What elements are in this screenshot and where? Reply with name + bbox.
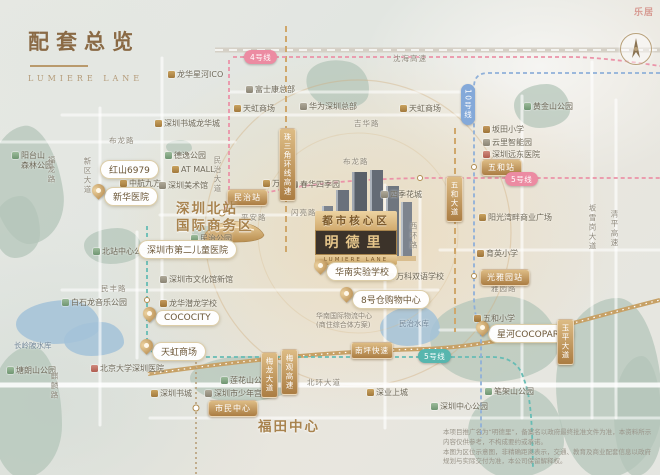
poi-label-text: AT MALL <box>181 165 215 175</box>
poi-label-text: 深圳美术馆 <box>168 181 208 191</box>
poi-label-text: 万科双语学校 <box>396 272 444 282</box>
road-label: 民丰路 <box>101 283 127 294</box>
road-badge: 珠三角环线高速 <box>279 128 296 201</box>
road-label: 闪亮路 <box>291 207 317 218</box>
poi-label: 深圳市文化馆新馆 <box>160 275 233 285</box>
poi-label-text: 云里智能园 <box>492 138 532 148</box>
project-marker: 都市核心区 明德里 LUMIERE LANE <box>315 211 397 265</box>
poi-label: 育英小学 <box>477 249 518 259</box>
poi-label: 深圳市少年宫 <box>205 389 262 399</box>
school-icon <box>483 126 490 133</box>
poi-label: 深圳中心公园 <box>431 402 488 412</box>
mall-icon <box>151 390 158 397</box>
poi-label: 深圳书城 <box>151 389 192 399</box>
park-icon <box>431 403 438 410</box>
poi-label: 白石龙音乐公园 <box>62 298 127 308</box>
metro-line-badge: 10号线 <box>461 84 475 125</box>
station-badge: 光雅园站 <box>480 269 530 286</box>
poi-pill-text: 华南实验学校 <box>335 268 389 278</box>
road-label: 清平高速 <box>609 210 620 248</box>
label-text: 民治水库 <box>399 319 429 328</box>
road-badge: 梅龙大道 <box>261 352 278 398</box>
road-badge: 梅观高速 <box>281 349 298 395</box>
poi-label-text: 深圳市少年宫 <box>214 389 262 399</box>
park-icon <box>165 152 172 159</box>
park-icon <box>62 299 69 306</box>
poi-label-text: 德逸公园 <box>174 151 206 161</box>
poi-label-text: 深圳书城 <box>160 389 192 399</box>
poi-label-text: 坂田小学 <box>492 125 524 135</box>
poi-label: AT MALL <box>172 165 215 175</box>
road-label: 西环路 <box>408 222 419 251</box>
school-icon <box>477 250 484 257</box>
district-label: 深圳北站 国际商务区 <box>176 201 254 235</box>
road-label: 福龙路 <box>46 156 57 185</box>
poi-pill-text: 星河COCOPARK <box>497 330 565 340</box>
mall-icon <box>155 120 162 127</box>
poi-pill: 天虹商场 <box>152 342 206 361</box>
disclaimer-line: 本项目推广名为“明德里”，备案名以政府最终批准文件为准，本资料所示内容仅供参考，… <box>443 428 655 448</box>
poi-label-text: 华为深圳总部 <box>309 102 357 112</box>
poi-label: 黄金山公园 <box>524 102 573 112</box>
poi-label: 四季花城 <box>381 190 422 200</box>
landmark-icon <box>159 182 166 189</box>
park-icon <box>485 388 492 395</box>
mall-icon <box>168 71 175 78</box>
poi-label: 阳光湾畔商业广场 <box>479 213 552 223</box>
poi-label: 华为深圳总部 <box>300 102 357 112</box>
label-text: 华南国际物流中心 (商住综合体方案) <box>316 312 372 330</box>
page-subtitle: LUMIERE LANE <box>28 74 143 83</box>
poi-label: 深业上城 <box>367 388 408 398</box>
poi-label: 云里智能园 <box>483 138 532 148</box>
landmark-icon <box>205 390 212 397</box>
poi-label-text: 白石龙音乐公园 <box>71 298 127 308</box>
poi-pill-text: 新华医院 <box>113 193 149 203</box>
road-label: 布龙路 <box>343 156 369 167</box>
compass-icon <box>620 33 652 65</box>
title-divider <box>30 65 88 67</box>
road-label: 布龙路 <box>109 135 135 146</box>
poi-label-text: 笔架山公园 <box>494 387 534 397</box>
poi-label-text: 北京大学深圳医院 <box>100 364 164 374</box>
poi-label: 龙华潜龙学校 <box>160 299 217 309</box>
mall-icon <box>120 180 127 187</box>
poi-label: 深圳美术馆 <box>159 181 208 191</box>
road-badge: 玉平大道 <box>557 319 574 365</box>
water-label: 长岭陂水库 <box>14 341 52 350</box>
road-label: 沈海高速 <box>393 53 427 64</box>
water-label: 民治水库 <box>399 319 429 328</box>
metro-line-badge: 5号线 <box>505 172 538 186</box>
mall-icon <box>172 166 179 173</box>
poi-pill: 8号仓购物中心 <box>352 290 430 309</box>
page-title: 配套总览 <box>28 26 143 56</box>
poi-pill-text: COCOCITY <box>164 313 211 323</box>
poi-label: 深圳书城龙华城 <box>155 119 220 129</box>
mall-icon <box>479 214 486 221</box>
park-icon <box>524 103 531 110</box>
poi-label-text: 深圳中心公园 <box>440 402 488 412</box>
poi-label-text: 天虹商场 <box>409 104 441 114</box>
poi-pill-text: 红山6979 <box>109 166 150 176</box>
poi-label-text: 天虹商场 <box>243 104 275 114</box>
poi-pill: 华南实验学校 <box>326 262 398 281</box>
poi-label: 龙华星河ICO <box>168 70 223 80</box>
poi-label-text: 黄金山公园 <box>533 102 573 112</box>
poi-label: 德逸公园 <box>165 151 206 161</box>
poi-pill: 红山6979 <box>100 160 159 179</box>
page-title-block: 配套总览 LUMIERE LANE <box>28 26 143 83</box>
poi-label: 天虹商场 <box>234 104 275 114</box>
poi-pill: 深圳市第二儿童医院 <box>138 240 237 259</box>
hospital-icon <box>483 151 490 158</box>
landmark-icon <box>300 103 307 110</box>
poi-label-text: 深圳书城龙华城 <box>164 119 220 129</box>
poi-label-text: 深业上城 <box>376 388 408 398</box>
landmark-icon <box>160 276 167 283</box>
label-text: 长岭陂水库 <box>14 341 52 350</box>
mall-icon <box>367 389 374 396</box>
landmark-icon <box>483 139 490 146</box>
poi-pill-text: 天虹商场 <box>161 348 197 358</box>
poi-label-text: 五和小学 <box>483 314 515 324</box>
school-icon <box>160 300 167 307</box>
project-area-banner: 都市核心区 <box>315 211 397 230</box>
road-badge: 五和大道 <box>446 176 463 222</box>
poi-label: 富士康总部 <box>246 85 295 95</box>
poi-pill-text: 深圳市第二儿童医院 <box>147 246 228 256</box>
poi-label-text: 富士康总部 <box>255 85 295 95</box>
mall-icon <box>400 105 407 112</box>
park-icon <box>221 377 228 384</box>
road-label: 吉华路 <box>354 118 380 129</box>
station-badge: 市民中心 <box>208 400 258 417</box>
disclaimer: 本项目推广名为“明德里”，备案名以政府最终批准文件为准，本资料所示内容仅供参考，… <box>443 428 655 467</box>
watermark: 乐居 <box>634 5 654 18</box>
road-label: 民治大道 <box>212 156 223 194</box>
metro-line-badge: 5号线 <box>418 349 451 363</box>
landmark-icon <box>246 86 253 93</box>
metro-line-badge: 4号线 <box>244 50 277 64</box>
poi-label-text: 龙华星河ICO <box>177 70 223 80</box>
project-name: 明德里 <box>315 230 397 255</box>
poi-label: 北京大学深圳医院 <box>91 364 164 374</box>
map-canvas: 配套总览 LUMIERE LANE 乐居 都市核心区 明德里 LUMIERE L… <box>0 0 660 475</box>
poi-pill-text: 8号仓购物中心 <box>361 296 421 306</box>
poi-label-text: 龙华潜龙学校 <box>169 299 217 309</box>
poi-label-text: 四季花城 <box>390 190 422 200</box>
road-label: 北环大道 <box>307 377 341 388</box>
poi-label: 天虹商场 <box>400 104 441 114</box>
park-icon <box>7 367 14 374</box>
poi-label: 笔架山公园 <box>485 387 534 397</box>
poi-label: 坂田小学 <box>483 125 524 135</box>
poi-label-text: 育英小学 <box>486 249 518 259</box>
road-label: 麒麟路 <box>49 372 60 401</box>
park-icon <box>12 152 19 159</box>
poi-label-text: 深圳市文化馆新馆 <box>169 275 233 285</box>
road-badge: 南坪快速 <box>351 342 393 359</box>
note-label: 华南国际物流中心 (商住综合体方案) <box>316 312 372 330</box>
poi-pill: 新华医院 <box>104 187 158 206</box>
poi-label-text: 阳光湾畔商业广场 <box>488 213 552 223</box>
mall-icon <box>263 180 270 187</box>
hospital-icon <box>91 365 98 372</box>
poi-label-text: 春华四季园 <box>300 180 340 190</box>
road-label: 坂雪岗大道 <box>587 204 598 252</box>
landmark-icon <box>381 191 388 198</box>
disclaimer-line: 本图为区位示意图，非精确距离表示，交通、教育及商业配套信息以政府规划与实际交付为… <box>443 448 655 468</box>
mall-icon <box>234 105 241 112</box>
park-icon <box>93 248 100 255</box>
poi-label: 春华四季园 <box>291 180 340 190</box>
poi-pill: COCOCITY <box>155 310 220 326</box>
district-label: 福田中心 <box>258 419 320 436</box>
